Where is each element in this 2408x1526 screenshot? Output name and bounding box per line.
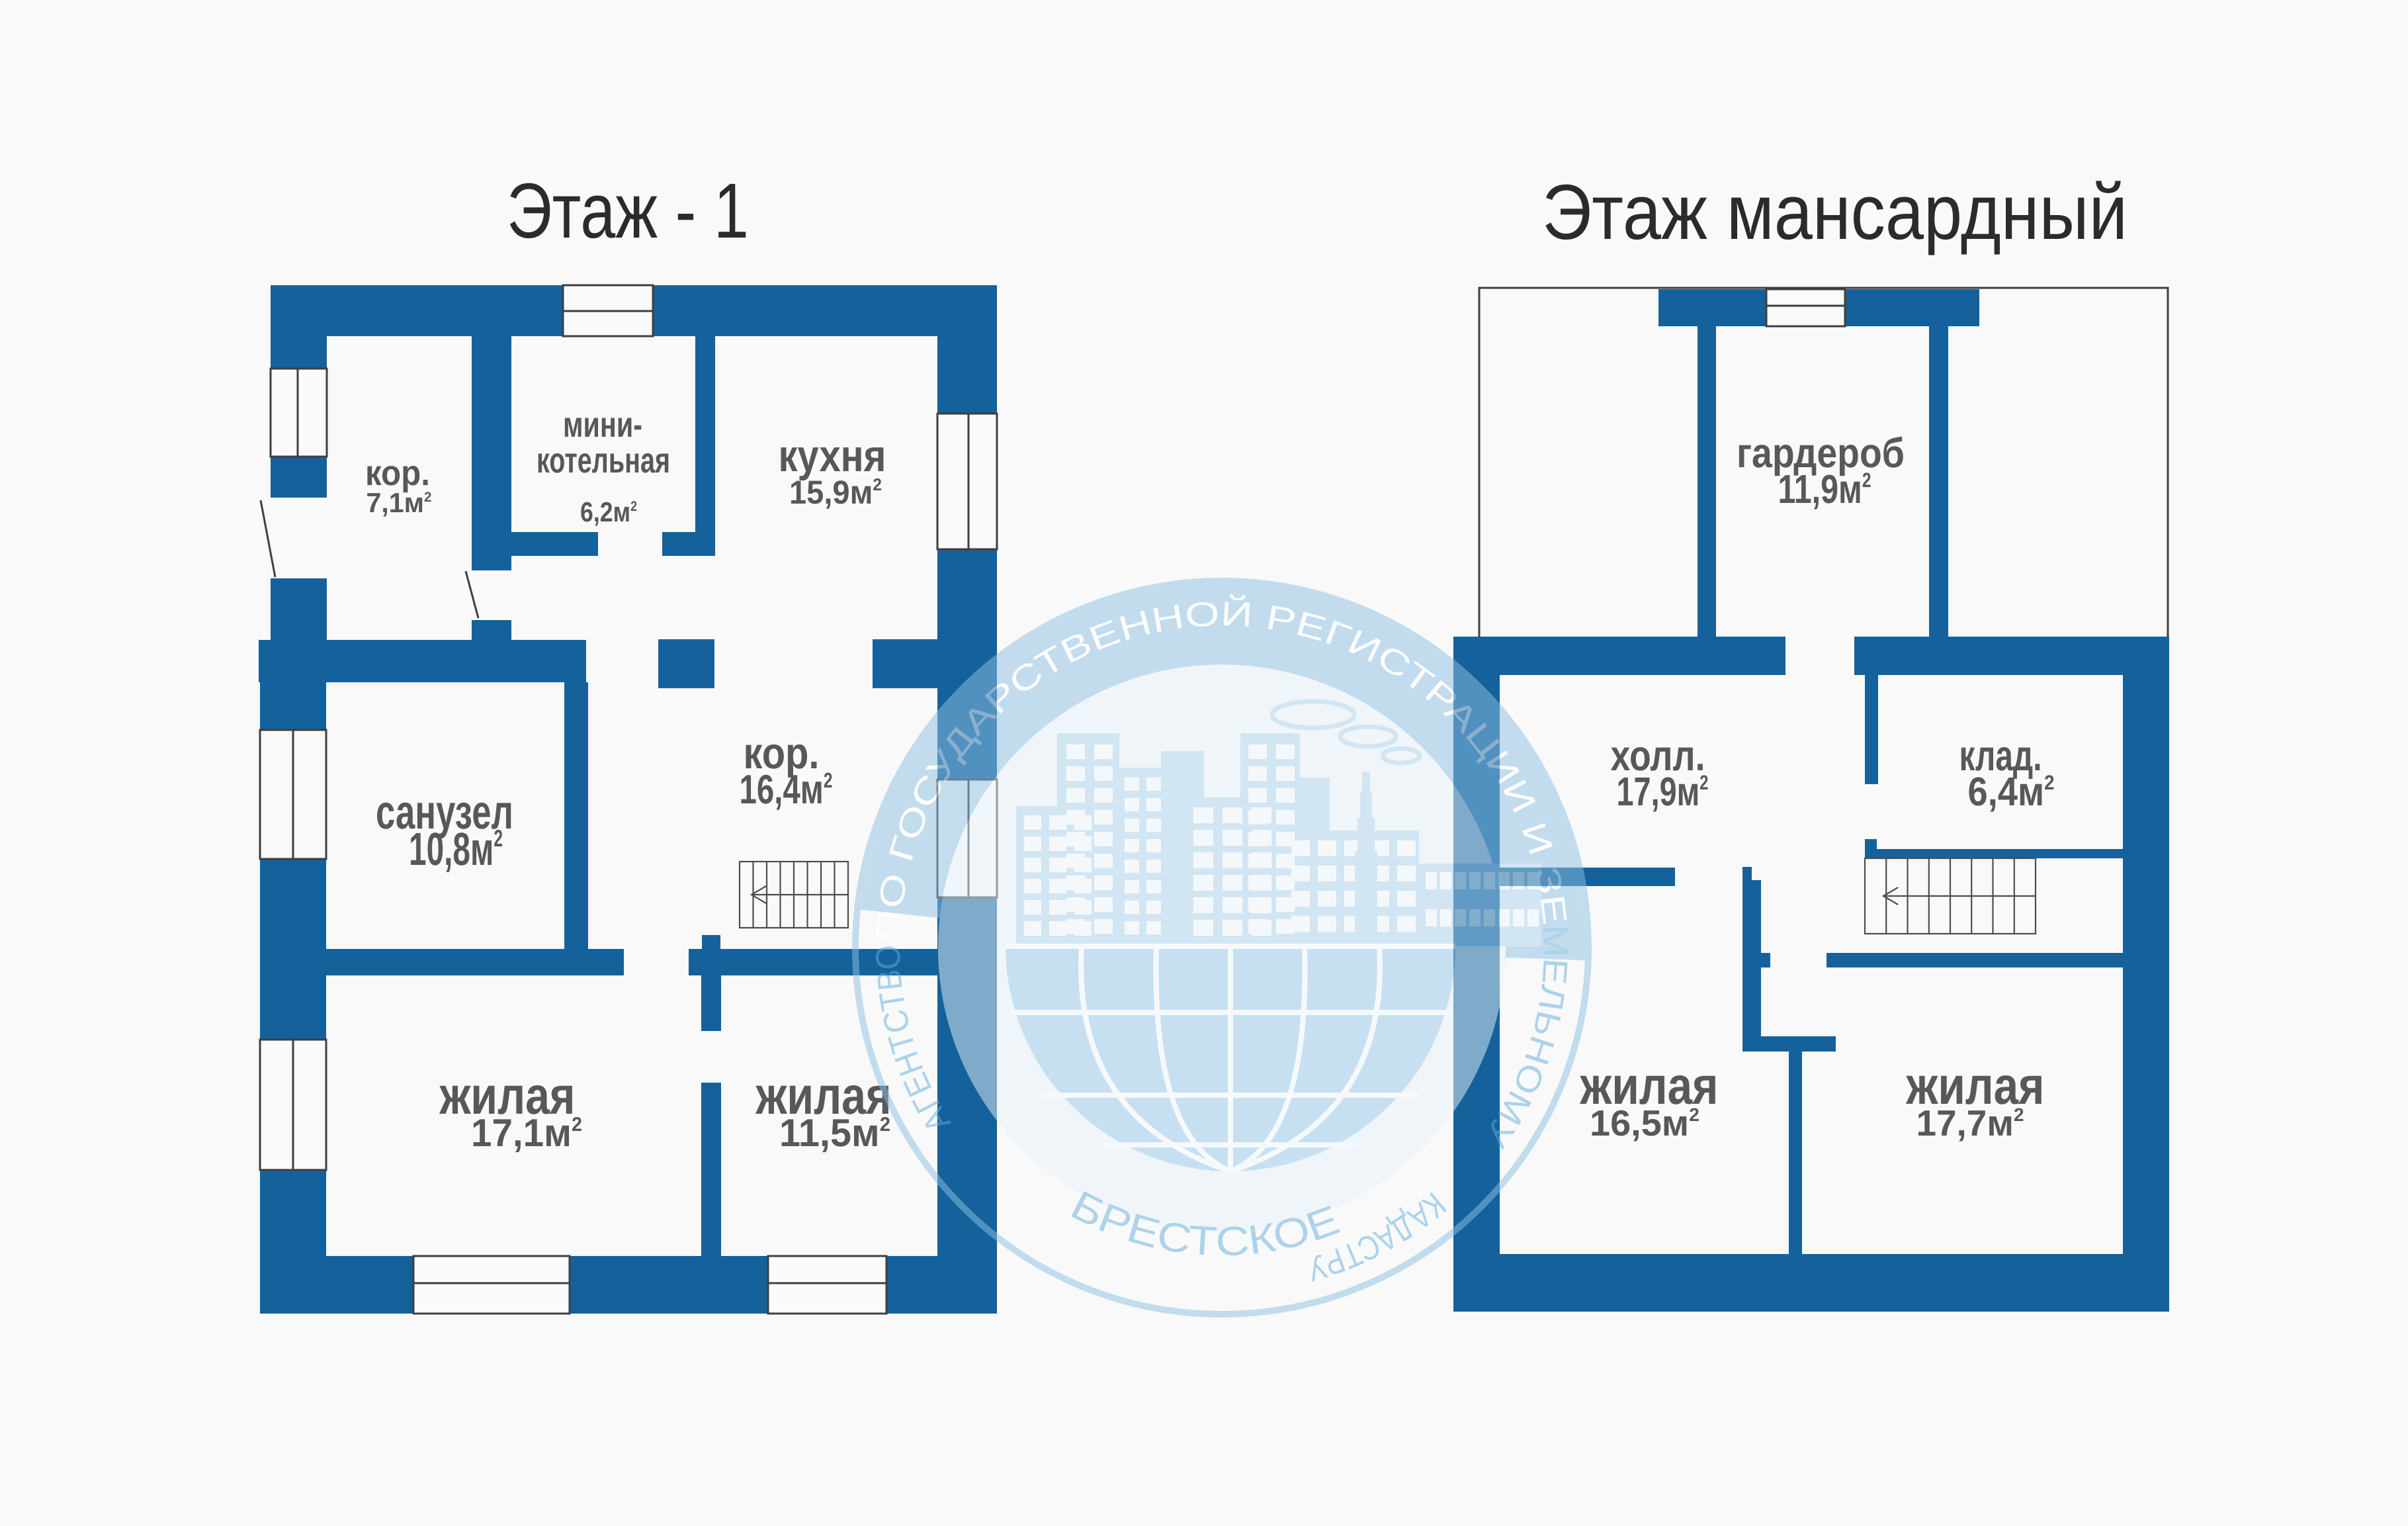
- svg-text:11,9м2: 11,9м2: [1778, 467, 1871, 512]
- svg-text:7,1м2: 7,1м2: [366, 487, 432, 518]
- svg-text:15,9м2: 15,9м2: [789, 474, 882, 511]
- svg-text:10,8м2: 10,8м2: [409, 823, 503, 875]
- svg-text:Этаж мансардный: Этаж мансардный: [1542, 169, 2128, 256]
- svg-text:11,5м2: 11,5м2: [779, 1111, 890, 1155]
- svg-text:6,4м2: 6,4м2: [1968, 769, 2055, 814]
- svg-text:16,4м2: 16,4м2: [740, 767, 833, 813]
- svg-text:котельная: котельная: [537, 441, 670, 480]
- svg-text:мини-: мини-: [563, 405, 642, 445]
- svg-text:16,5м2: 16,5м2: [1590, 1102, 1699, 1144]
- svg-text:17,1м2: 17,1м2: [471, 1111, 582, 1155]
- svg-text:6,2м2: 6,2м2: [580, 496, 637, 527]
- svg-text:17,9м2: 17,9м2: [1617, 769, 1709, 814]
- svg-text:17,7м2: 17,7м2: [1916, 1102, 2024, 1144]
- svg-text:Этаж - 1: Этаж - 1: [507, 167, 749, 255]
